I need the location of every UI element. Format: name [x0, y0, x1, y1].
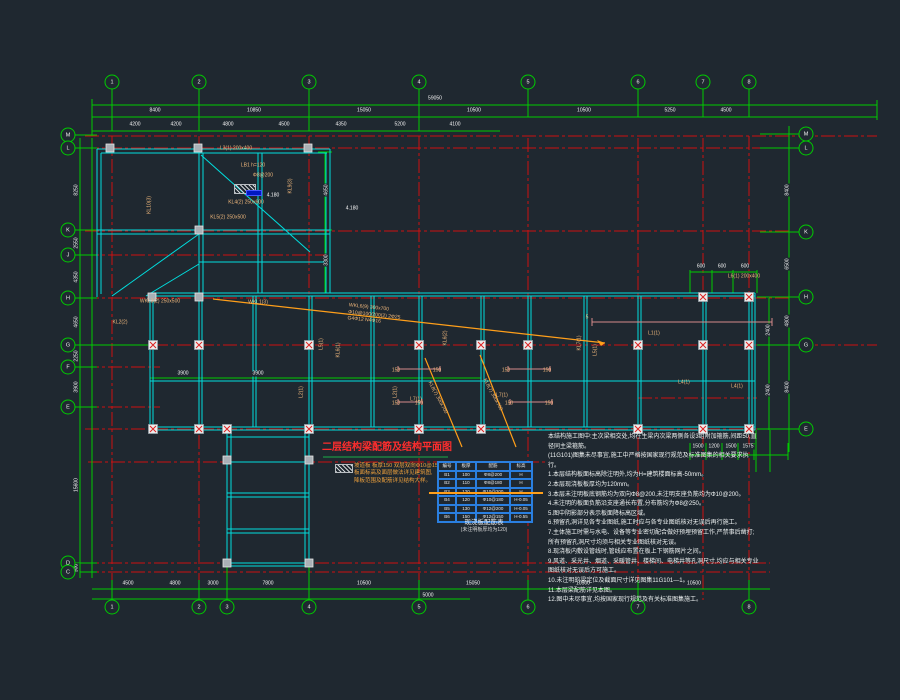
dimension-value: 4500 — [277, 123, 290, 128]
dimension-value: 8250 — [75, 183, 80, 196]
grid-bubble: 4 — [412, 75, 427, 90]
dimension-value: 10500 — [466, 109, 482, 114]
elevation-label: 4.180 — [346, 207, 359, 212]
beams-band-cyan — [150, 293, 755, 430]
grid-bubble: E — [61, 400, 76, 415]
beam-label: KL6(2) — [443, 330, 449, 345]
dimension-value: 7800 — [261, 582, 274, 587]
beam-label: L4(1) — [678, 380, 690, 386]
table-cell: 100 — [456, 471, 476, 480]
grid-bubble: K — [799, 225, 814, 240]
beam-label: KL6(1) — [336, 342, 342, 357]
table-cell: Φ8@200 — [476, 471, 510, 480]
grid-bubble: M — [799, 127, 814, 142]
grid-bubble: 8 — [742, 75, 757, 90]
table-cell: 标高 — [510, 462, 532, 471]
grid-bubble: K — [61, 223, 76, 238]
dimension-value: 4350 — [75, 270, 80, 283]
grid-bubble: F — [61, 360, 76, 375]
beam-label: LB1 h=120 — [241, 163, 265, 169]
table-cell: B1 — [438, 471, 456, 480]
general-note-line: 4.未注明的板面负筋沿支座通长布置,分布筋均为Φ8@250。 — [548, 500, 760, 510]
grid-bubble: 5 — [521, 75, 536, 90]
dimension-value: 600 — [740, 265, 750, 270]
dimension-value: 15050 — [356, 109, 372, 114]
dimension-value: 6500 — [786, 257, 791, 270]
dimension-value: 4800 — [786, 314, 791, 327]
table-cell: 板厚 — [456, 462, 476, 471]
table-title: 现浇板配筋表 — [465, 516, 504, 526]
table-cell: H-0.05 — [510, 505, 532, 514]
table-cell: Φ8@180 — [476, 479, 510, 488]
dimension-value: 3000 — [206, 582, 219, 587]
dimension-value: 4350 — [334, 123, 347, 128]
grid-bubble: H — [61, 291, 76, 306]
beam-label: L3(1) 200x400 — [220, 146, 252, 152]
beam-label: KL4(2) 250x600 — [228, 200, 264, 206]
grid-bubble: 2 — [192, 600, 207, 615]
general-note-line: 9.风道、采光井、烟道、采暖管井、楼梯间、电梯井等孔洞尺寸,均应与相关专业图纸核… — [548, 558, 760, 577]
dimension-value: 3900 — [75, 380, 80, 393]
beam-label: KL7(1) — [577, 335, 583, 350]
dimension-value: 10500 — [356, 582, 372, 587]
legend-hatch-swatch — [335, 464, 353, 473]
dimension-value: 4200 — [128, 123, 141, 128]
beam-label: L2(1) — [299, 386, 305, 398]
grid-bubble: 1 — [105, 600, 120, 615]
dimension-value: 8400 — [786, 183, 791, 196]
dimension-value: 600 — [696, 265, 706, 270]
title-underline — [323, 456, 448, 458]
dimension-value: 4800 — [168, 582, 181, 587]
beams-wing-cyan — [97, 149, 330, 297]
dimension-value: 3900 — [176, 372, 189, 377]
table-cell: B6 — [438, 513, 456, 522]
grid-bubble: 7 — [696, 75, 711, 90]
beam-label: 150 — [545, 401, 553, 407]
beam-label: L6(1) 200x400 — [728, 274, 760, 280]
dimension-value: 3900 — [251, 372, 264, 377]
dimension-value: 59050 — [427, 97, 443, 102]
dimension-value: 2400 — [767, 323, 772, 336]
general-note-line: 11.本层梁配筋详见本图。 — [548, 587, 760, 597]
dimension-value: 8400 — [786, 380, 791, 393]
general-note-line: (11G101)图集未尽事宜,施工中严格按国家现行规范及标准图集的相关要求执行。 — [548, 452, 760, 471]
general-note-line: 本结构施工图中:主次梁相交处,均在主梁内次梁两侧各设3组附加箍筋,间距50,直径… — [548, 433, 760, 452]
beams-ramp-cyan — [227, 432, 309, 566]
beam-label: Φ8@200 — [253, 173, 273, 179]
beam-label: 150 — [505, 401, 513, 407]
beam-label: 150 — [543, 368, 551, 374]
embed-plate-marker — [246, 190, 262, 196]
general-note-line: 8.现浇板内敷设管线时,管线应布置在板上下钢筋网片之间。 — [548, 548, 760, 558]
table-subtitle: (未注明板厚均为120) — [461, 526, 508, 533]
dimension-value: 4500 — [719, 109, 732, 114]
table-cell: 120 — [456, 496, 476, 505]
elevation-label: 4.180 — [267, 194, 280, 199]
grid-bubble: 1 — [105, 75, 120, 90]
table-cell: 编号 — [438, 462, 456, 471]
table-cell: H-0.05 — [510, 496, 532, 505]
dimension-value: 4100 — [448, 123, 461, 128]
beam-label: L5(1) — [319, 338, 325, 350]
grid-bubble: 6 — [521, 600, 536, 615]
general-note-line: 12.图中未尽事宜,均按国家现行规范及有关标准图集施工。 — [548, 596, 760, 606]
dimension-value: 15050 — [465, 582, 481, 587]
grid-bubble: 2 — [192, 75, 207, 90]
beam-label: L4(1) — [731, 384, 743, 390]
grid-bubble: 6 — [631, 75, 646, 90]
table-cell: Φ12@200 — [476, 505, 510, 514]
dimension-value: 4500 — [121, 582, 134, 587]
table-cell: B5 — [438, 505, 456, 514]
general-note-line: 6.预留孔洞详见各专业图纸,施工时应与各专业图纸核对无误后再行施工。 — [548, 519, 760, 529]
dimension-value: 5250 — [663, 109, 676, 114]
dimension-value: 2550 — [75, 236, 80, 249]
grid-bubble: L — [61, 141, 76, 156]
dimension-value: 10500 — [576, 109, 592, 114]
general-note-line: 3.本层未注明板底钢筋均为双向Φ8@200,未注明支座负筋均为Φ10@200。 — [548, 491, 760, 501]
grid-bubble: 4 — [302, 600, 317, 615]
dimension-value: 8400 — [148, 109, 161, 114]
beam-label: 5 — [586, 315, 589, 321]
table-cell: 130 — [456, 505, 476, 514]
beam-label: 150 — [502, 368, 510, 374]
table-cell: H — [510, 471, 532, 480]
beam-label: L1(1) — [648, 331, 660, 337]
general-note-line: 2.本层现浇板板厚均为120mm。 — [548, 481, 760, 491]
general-note-line: 10.未注明的梁定位及截面尺寸详见图集11G101—1。 — [548, 577, 760, 587]
dimension-value: 10850 — [246, 109, 262, 114]
general-note-line: 7.主体施工时需与水电、设备等专业密切配合做好预埋预留工作,严禁事后凿打;所有预… — [548, 529, 760, 548]
general-note-line: 1.本层结构板面标高除注明外,均为H=建筑楼面标高-50mm。 — [548, 471, 760, 481]
general-notes: 本结构施工图中:主次梁相交处,均在主梁内次梁两侧各设3组附加箍筋,间距50,直径… — [548, 433, 760, 606]
aux-dims-pink — [398, 318, 772, 405]
dimension-value: 5000 — [421, 594, 434, 599]
drawing-title: 二层结构梁配筋及结构平面图 — [322, 438, 452, 453]
beam-label: L2(1) — [393, 386, 399, 398]
dimension-value: 4800 — [221, 123, 234, 128]
table-cell: B4 — [438, 496, 456, 505]
dimension-value: 15600 — [75, 477, 80, 493]
beam-label: 150 — [415, 401, 423, 407]
beam-label: 150 — [433, 368, 441, 374]
beam-label: KL5(2) 250x500 — [210, 215, 246, 221]
grid-bubble: E — [799, 422, 814, 437]
dimension-value: 4650 — [325, 183, 330, 196]
dimension-value: 5200 — [393, 123, 406, 128]
table-cell: 110 — [456, 479, 476, 488]
grid-bubble: G — [61, 338, 76, 353]
grid-bubble: 5 — [412, 600, 427, 615]
grid-bubble: G — [799, 338, 814, 353]
table-cell: 配筋 — [476, 462, 510, 471]
grid-bubble: H — [799, 290, 814, 305]
dimension-value: 4200 — [169, 123, 182, 128]
table-cell: B2 — [438, 479, 456, 488]
table-cell: H-0.55 — [510, 513, 532, 522]
grid-bubble: 3 — [302, 75, 317, 90]
beam-label: 150 — [392, 368, 400, 374]
general-note-line: 5.图中阴影部分表示板面降标高区域。 — [548, 510, 760, 520]
dimension-value: 2250 — [75, 349, 80, 362]
grid-bubble: L — [799, 141, 814, 156]
dimension-value: 2400 — [767, 383, 772, 396]
beam-label: L5(1) — [593, 344, 599, 356]
dimension-value: 4650 — [75, 315, 80, 328]
dimension-value: 3300 — [325, 253, 330, 266]
grid-bubble: J — [61, 248, 76, 263]
table-highlight-line — [429, 492, 543, 494]
grid-bubble: C — [61, 565, 76, 580]
table-cell: Φ10@180 — [476, 496, 510, 505]
dimension-value: 600 — [717, 265, 727, 270]
beam-label: WKL3(2) 250x500 — [140, 299, 180, 305]
beam-label: KL9(3) — [288, 178, 294, 193]
grid-bubble: 3 — [220, 600, 235, 615]
drawing-geometry — [0, 0, 900, 700]
cad-canvas: 1234567812345678MLKJHGFEDCMLKHGE 5905084… — [0, 0, 900, 700]
beam-label: 150 — [392, 401, 400, 407]
table-cell: H — [510, 479, 532, 488]
beam-label: WKL1(3) — [248, 300, 268, 306]
beam-label: KL10(3) — [147, 196, 153, 214]
beam-label: KL2(2) — [112, 320, 127, 326]
